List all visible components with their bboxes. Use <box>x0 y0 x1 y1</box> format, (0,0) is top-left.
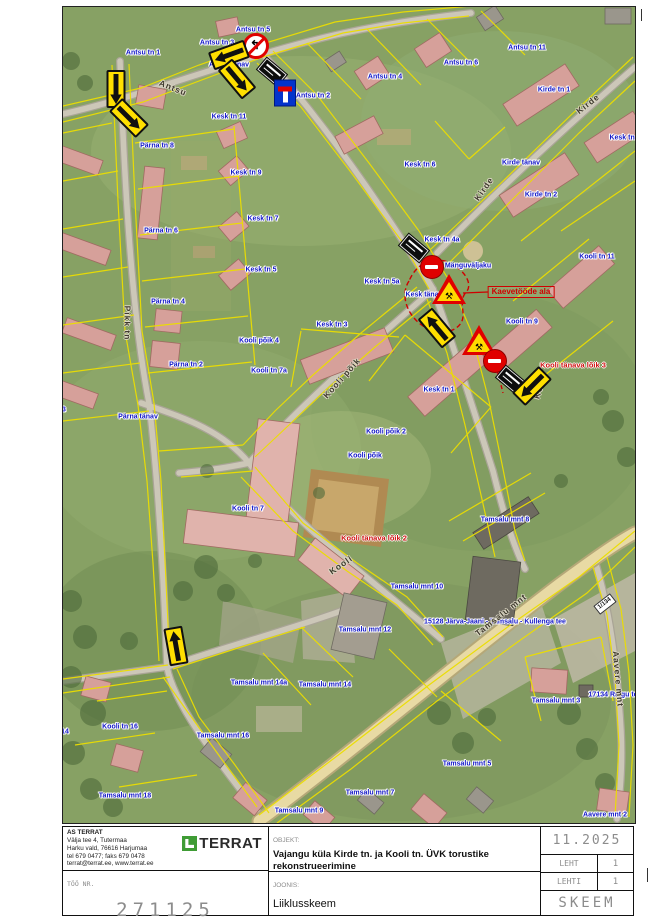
map-label: Kesk tn 3 <box>316 322 347 329</box>
street-name-label: Aavere mnt <box>611 651 624 708</box>
map-label: Kesk tn 1 <box>423 387 454 394</box>
map-label: Mänguväljaku <box>445 263 491 270</box>
map-label: Tamsalu mnt 14 <box>299 682 351 689</box>
sheet-value: 1 <box>598 855 633 872</box>
arrow-sign <box>512 366 552 406</box>
date-cell: 11.2025 <box>541 827 633 855</box>
map-label: Kooli tn 7 <box>232 506 264 513</box>
map-label: Kooli põik 2 <box>366 429 406 436</box>
map-label: Antsu tn 2 <box>296 93 330 100</box>
map-label: 17134 Raigu tee <box>589 692 636 699</box>
map-label: Kesk tn 9 <box>230 170 261 177</box>
arrow-sign <box>418 307 457 348</box>
map-label: Kooli põik <box>348 453 382 460</box>
corner-tick-top <box>641 9 642 21</box>
map-label: Pärna tn 4 <box>151 299 185 306</box>
map-label: Kooli tn 16 <box>102 724 138 731</box>
object-title: Vajangu küla Kirde tn. ja Kooli tn. ÜVK … <box>273 849 536 873</box>
map-label: Tamsalu mnt 7 <box>346 790 395 797</box>
drawing-label: JOONIS: <box>273 882 299 889</box>
map-label: Antsu tn 6 <box>444 60 478 67</box>
map-label: Kesk tn 6 <box>404 162 435 169</box>
map-label: Kooli tn 11 <box>579 254 614 261</box>
terrat-logo-icon <box>182 836 197 851</box>
map-label: Antsu tn 11 <box>508 45 546 52</box>
company-cell: AS TERRAT Välja tee 4, Tutermaa Harku va… <box>63 827 268 871</box>
map-label: Tamsalu mnt 8 <box>481 517 530 524</box>
corner-tick-bottom <box>647 868 648 882</box>
object-cell: OBJEKT: Vajangu küla Kirde tn. ja Kooli … <box>269 827 540 872</box>
terrat-logo-text: TERRAT <box>199 835 262 852</box>
terrat-logo: TERRAT <box>182 835 262 852</box>
map-label: Pärna tn 8 <box>140 143 174 150</box>
map-label: Tamsalu mnt 16 <box>197 733 249 740</box>
map-label: Tamsalu mnt 18 <box>99 793 151 800</box>
map-label: Tamsalu mnt 10 <box>391 584 443 591</box>
kmplate-sign: 1/134 <box>593 593 616 615</box>
title-block-left: AS TERRAT Välja tee 4, Tutermaa Harku va… <box>63 827 269 915</box>
street-name-label: Antsu <box>158 79 188 98</box>
arrow-sign <box>218 58 257 99</box>
object-label: OBJEKT: <box>273 837 299 844</box>
arrow-sign <box>163 626 188 667</box>
map-label: Kirde tn 2 <box>525 192 557 199</box>
title-block: AS TERRAT Välja tee 4, Tutermaa Harku va… <box>62 826 634 916</box>
drawing-cell: JOONIS: Liiklusskeem <box>269 872 540 915</box>
title-block-middle: OBJEKT: Vajangu küla Kirde tn. ja Kooli … <box>269 827 541 915</box>
map-label: Kooli põik 4 <box>239 338 279 345</box>
map-label: Kesk tn 2 <box>609 135 636 142</box>
map-label: Kesk tn 5a <box>364 279 399 286</box>
map-label: Kooli tänava lõik 3 <box>540 361 606 369</box>
arrow-sign <box>109 98 149 138</box>
work-number-value: 271125 <box>67 899 264 919</box>
map-label: Kirde tn 1 <box>538 87 570 94</box>
deadend-sign <box>274 80 296 107</box>
map-label: Kesk tn 11 <box>212 114 247 121</box>
sheets-total-value: 1 <box>598 873 633 890</box>
map-label: Tamsalu mnt 3 <box>532 698 581 705</box>
sheet-label: LEHT <box>541 855 598 872</box>
map-label: Kooli tn 9 <box>506 319 538 326</box>
map-label: Kirde tänav <box>502 160 540 167</box>
map-label: Tamsalu mnt 9 <box>275 808 324 815</box>
map-label: Kooli tänava lõik 2 <box>341 534 407 542</box>
street-name-label: Pikk tn <box>123 306 132 341</box>
map-label: Tamsalu mnt 12 <box>339 627 391 634</box>
work-number-cell: TÖÖ NR. 271125 <box>63 871 268 919</box>
map-label: Kooli tn 7a <box>251 368 287 375</box>
map-label: Tamsalu mnt 5 <box>443 761 492 768</box>
map-label: Antsu tn 4 <box>368 74 402 81</box>
street-name-label: Kooli põik <box>322 356 363 400</box>
map-label: Tamsalu mnt 14a <box>231 680 287 687</box>
work-area-callout: Kaevetööde ala <box>488 286 555 298</box>
work-number-label: TÖÖ NR. <box>67 880 94 888</box>
document-page: Antsu tn 5Antsu tn 3Antsu tn 1Antsu täna… <box>0 0 650 919</box>
sheets-total-row: LEHTI 1 <box>541 873 633 891</box>
title-block-right: 11.2025 LEHT 1 LEHTI 1 SKEEM <box>541 827 633 915</box>
map-label: Kesk tn 4a <box>424 237 459 244</box>
map-label: Pärna tn 3 <box>62 407 66 414</box>
street-name-label: Kooli <box>328 554 354 576</box>
map-label: Kesk tn 5 <box>245 267 276 274</box>
map-label: Antsu tn 1 <box>126 50 160 57</box>
map-label: Kesk tn 7 <box>247 216 278 223</box>
map-label: Kooli tn 14 <box>62 729 69 736</box>
sheet-row: LEHT 1 <box>541 855 633 873</box>
map-label: Aavere mnt 2 <box>583 812 627 819</box>
map-label: Pärna tn 6 <box>144 228 178 235</box>
roadworks-sign: ⚒ <box>432 274 466 304</box>
drawing-title: Liiklusskeem <box>273 898 536 910</box>
map-area: Antsu tn 5Antsu tn 3Antsu tn 1Antsu täna… <box>62 6 636 824</box>
map-overlay: Antsu tn 5Antsu tn 3Antsu tn 1Antsu täna… <box>63 7 635 823</box>
street-name-label: Tamsalu mnt <box>474 592 529 637</box>
sheets-total-label: LEHTI <box>541 873 598 890</box>
street-name-label: Kirde <box>575 92 601 115</box>
map-label: Pärna tn 2 <box>169 362 203 369</box>
street-name-label: Kirde <box>473 176 495 203</box>
map-label: Pärna tänav <box>118 414 158 421</box>
stage-cell: SKEEM <box>541 891 633 915</box>
